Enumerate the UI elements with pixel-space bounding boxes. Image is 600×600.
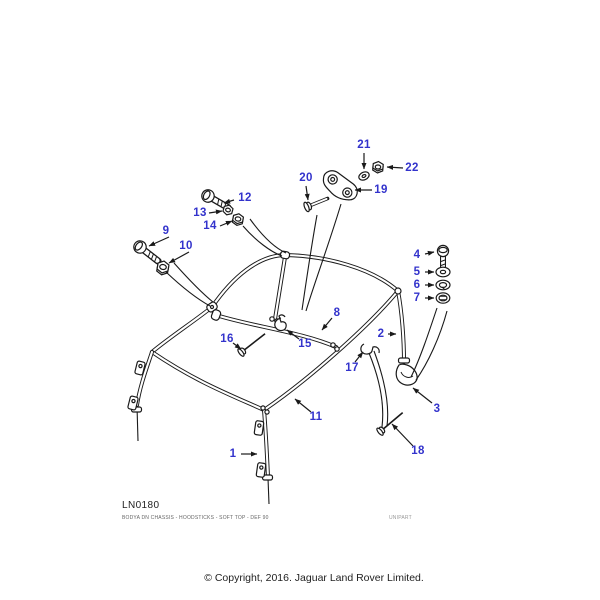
- stick-hook: [256, 463, 266, 478]
- part-screw-18: [376, 409, 406, 436]
- part-washer-21: [358, 170, 371, 181]
- callout-17: 17: [345, 362, 358, 374]
- callout-21: 21: [357, 139, 370, 151]
- bow-right-clamp: [335, 347, 339, 351]
- callout-16: 16: [220, 333, 233, 345]
- strap-17: [369, 353, 383, 427]
- exploded-parts-diagram: [0, 0, 600, 600]
- part-nut-22: [372, 161, 383, 173]
- callout-4: 4: [414, 249, 421, 261]
- front-stick-pin: [268, 478, 269, 504]
- front-corner-joint: [261, 406, 265, 410]
- parts-diagram-page: 1 2 3 4 5 6 7 8 9 10 11 12 13 14 15 16 1…: [0, 0, 600, 600]
- front-corner-joint: [265, 410, 269, 414]
- rear-stick-collar: [399, 358, 410, 363]
- callout-22: 22: [405, 162, 418, 174]
- callout-19: 19: [374, 184, 387, 196]
- callout-18: 18: [411, 445, 424, 457]
- hoodstick-frame: [128, 251, 418, 504]
- drawing-description: BODYA DN CHASSIS - HOODSTICKS - SOFT TOP…: [122, 515, 269, 521]
- brand-label: UNIPART: [389, 515, 412, 521]
- callout-1: 1: [230, 448, 237, 460]
- hardware-parts: [131, 161, 450, 436]
- callout-9: 9: [163, 225, 170, 237]
- rear-right-corner-joint: [395, 288, 401, 294]
- callout-10: 10: [179, 240, 192, 252]
- callout-20: 20: [299, 172, 312, 184]
- callout-14: 14: [203, 220, 216, 232]
- part-screw-20: [303, 194, 330, 212]
- bow-right-clamp: [331, 343, 335, 347]
- callout-13: 13: [193, 207, 206, 219]
- part-pin-16: [237, 330, 268, 357]
- part-spring-washer-6: [436, 280, 450, 290]
- drawing-code: LN0180: [122, 500, 159, 511]
- callout-12: 12: [238, 192, 251, 204]
- callout-8: 8: [334, 307, 341, 319]
- strap-17: [374, 351, 388, 426]
- callout-2: 2: [378, 328, 385, 340]
- part-bolt-4: [437, 245, 448, 269]
- part-nut-14: [232, 213, 244, 226]
- part-hook-17: [361, 344, 379, 354]
- stick-hook: [254, 421, 264, 436]
- strut-bottom-joint: [270, 317, 274, 321]
- callout-6: 6: [414, 279, 421, 291]
- callout-3: 3: [434, 403, 441, 415]
- callout-11: 11: [310, 411, 323, 423]
- part-washer-5: [436, 267, 450, 277]
- copyright-notice: © Copyright, 2016. Jaguar Land Rover Lim…: [0, 572, 600, 584]
- leader-lines: [149, 153, 434, 454]
- callout-15: 15: [298, 338, 311, 350]
- callout-7: 7: [414, 292, 421, 304]
- reference-curves: [166, 204, 447, 427]
- callout-5: 5: [414, 266, 421, 278]
- part-foot: [396, 364, 417, 385]
- part-nut-7: [436, 293, 450, 303]
